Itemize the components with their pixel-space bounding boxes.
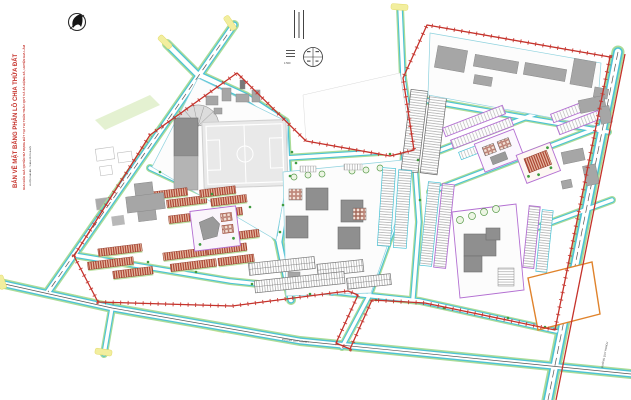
north-arrow-compass: [69, 14, 86, 31]
land-use-balance-circle: [304, 48, 323, 67]
site-plan-map: 1:500 BẢN VẼ MẶT BẰNG PHÂN LÔ CHIA THỬA …: [0, 0, 631, 400]
grandstand-building: [174, 118, 198, 156]
drawing-title-line1: BẢN VẼ MẶT BẰNG PHÂN LÔ CHIA THỬA ĐẤT: [11, 53, 19, 188]
football-pitch: [202, 120, 288, 189]
grandstand-lower: [174, 156, 198, 190]
plan-drawing-canvas: 1:500 BẢN VẼ MẶT BẰNG PHÂN LÔ CHIA THỬA …: [0, 0, 631, 400]
scale-label: 1:500: [284, 61, 291, 65]
drawing-title-line2: KHU ĐẤU GIÁ QUYỀN SỬ DỤNG ĐẤT TẠI THỊ TR…: [21, 44, 26, 190]
kindergarten-block-left: [190, 206, 241, 251]
drawing-title-line3: HUYỆN GIA LÂM - THÀNH PHỐ HÀ NỘI: [29, 146, 32, 186]
school-block-right: [452, 204, 524, 298]
